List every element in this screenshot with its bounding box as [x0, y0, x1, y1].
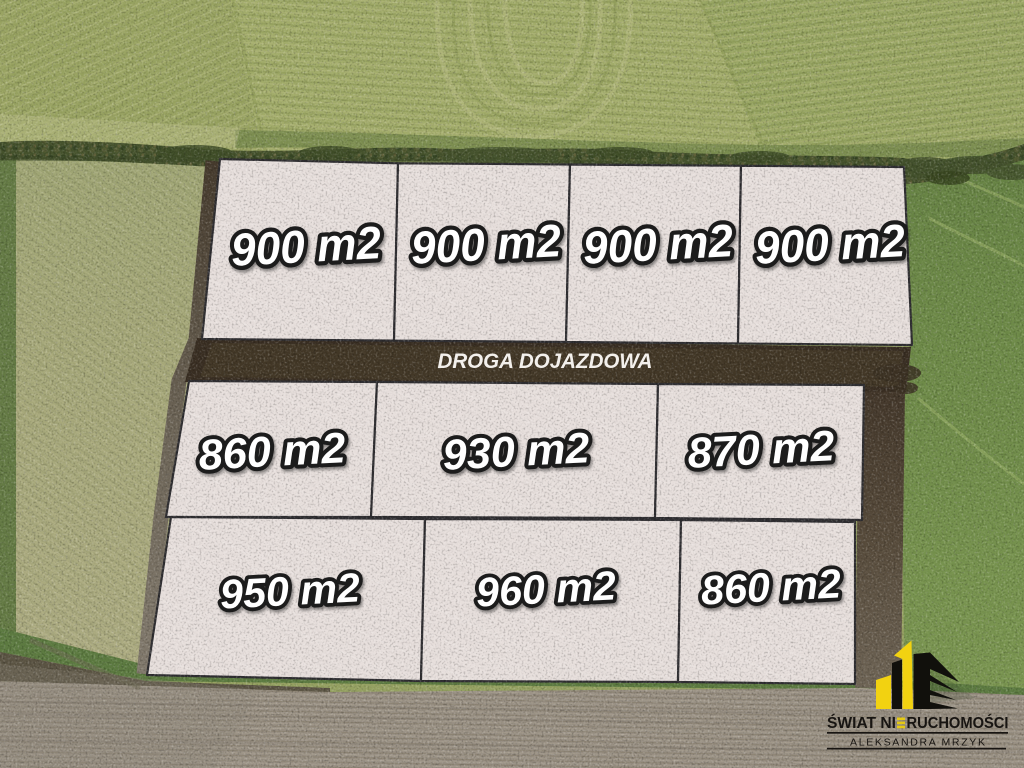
svg-text:900 m2: 900 m2: [230, 216, 383, 276]
svg-text:900 m2: 900 m2: [754, 214, 907, 274]
svg-text:RUCHOMOŚCI: RUCHOMOŚCI: [907, 714, 1009, 732]
svg-text:DROGA DOJAZDOWA: DROGA DOJAZDOWA: [438, 350, 653, 373]
svg-text:960 m2: 960 m2: [475, 562, 617, 615]
svg-text:900 m2: 900 m2: [410, 214, 563, 274]
svg-text:870 m2: 870 m2: [686, 422, 835, 478]
svg-text:ŚWIAT NI: ŚWIAT NI: [827, 714, 896, 732]
svg-text:930 m2: 930 m2: [441, 424, 590, 480]
svg-text:ALEKSANDRA MRZYK: ALEKSANDRA MRZYK: [850, 737, 985, 749]
svg-text:950 m2: 950 m2: [219, 564, 361, 617]
svg-text:900 m2: 900 m2: [582, 214, 735, 274]
svg-text:860 m2: 860 m2: [197, 424, 346, 480]
svg-text:860 m2: 860 m2: [700, 560, 842, 613]
